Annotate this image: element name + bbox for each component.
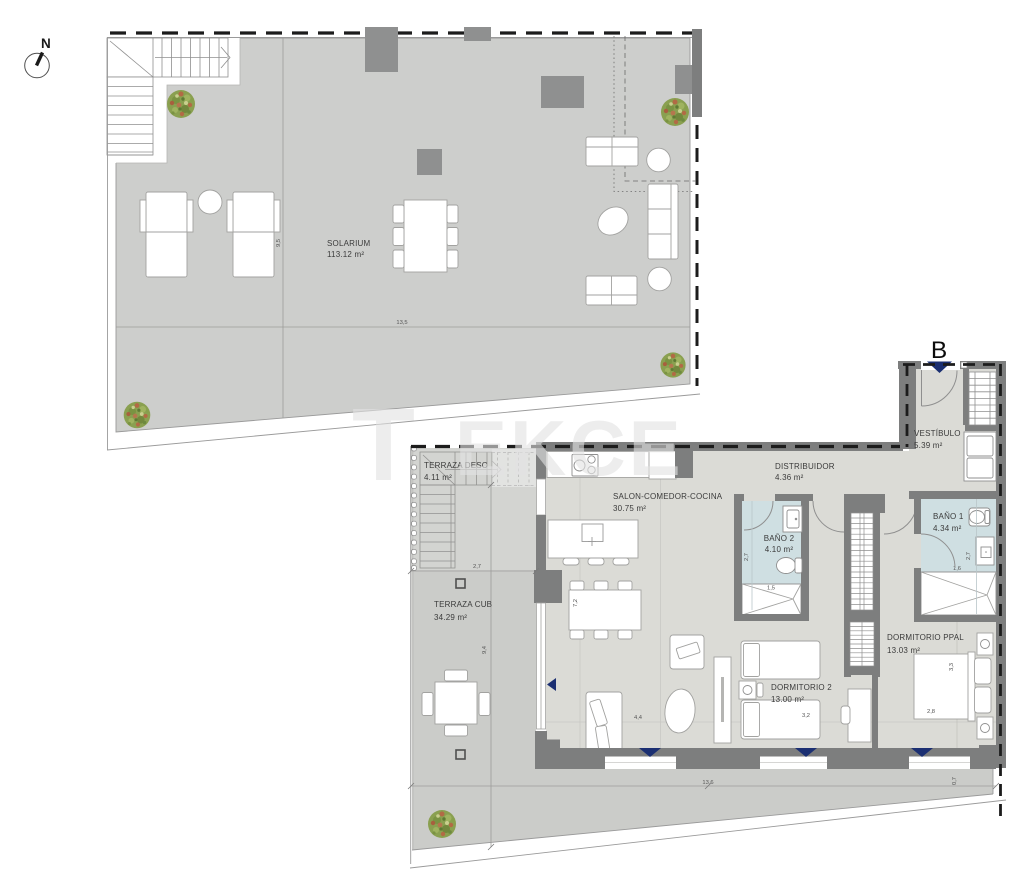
svg-text:BAÑO 2: BAÑO 2	[764, 534, 795, 543]
svg-text:1,5: 1,5	[767, 586, 775, 592]
svg-text:13.00 m²: 13.00 m²	[771, 695, 804, 704]
svg-text:1,6: 1,6	[953, 566, 961, 572]
svg-text:SALON-COMEDOR-COCINA: SALON-COMEDOR-COCINA	[613, 492, 723, 501]
svg-text:TEKCE: TEKCE	[352, 387, 684, 502]
svg-text:7,2: 7,2	[573, 599, 579, 607]
svg-text:2,7: 2,7	[966, 552, 972, 560]
svg-text:4.36 m²: 4.36 m²	[775, 473, 804, 482]
svg-text:N: N	[41, 36, 51, 51]
svg-text:TERRAZA CUB: TERRAZA CUB	[434, 600, 492, 609]
svg-text:30.75 m²: 30.75 m²	[613, 504, 646, 513]
svg-text:B: B	[931, 337, 947, 364]
svg-text:9,4: 9,4	[482, 645, 488, 654]
svg-text:VESTÍBULO: VESTÍBULO	[914, 429, 961, 438]
svg-text:13,5: 13,5	[396, 320, 407, 326]
svg-text:BAÑO 1: BAÑO 1	[933, 512, 964, 521]
svg-text:4.10 m²: 4.10 m²	[765, 545, 794, 554]
svg-text:34.29 m²: 34.29 m²	[434, 613, 467, 622]
svg-text:DORMITORIO PPAL: DORMITORIO PPAL	[887, 633, 964, 642]
svg-text:SOLARIUM: SOLARIUM	[327, 239, 371, 248]
svg-text:4.34 m²: 4.34 m²	[933, 524, 962, 533]
svg-text:4.11 m²: 4.11 m²	[424, 473, 452, 482]
svg-text:13,6: 13,6	[702, 780, 713, 786]
svg-text:13.03 m²: 13.03 m²	[887, 646, 920, 655]
svg-text:9,5: 9,5	[276, 239, 282, 247]
svg-text:3,3: 3,3	[949, 663, 955, 671]
svg-text:4,4: 4,4	[634, 715, 643, 721]
svg-text:2,7: 2,7	[744, 553, 750, 561]
svg-text:5.39 m²: 5.39 m²	[914, 441, 943, 450]
svg-text:113.12 m²: 113.12 m²	[327, 250, 364, 259]
svg-text:DORMITORIO 2: DORMITORIO 2	[771, 683, 832, 692]
svg-text:2,8: 2,8	[927, 709, 935, 715]
svg-text:DISTRIBUIDOR: DISTRIBUIDOR	[775, 462, 835, 471]
svg-text:3,2: 3,2	[802, 713, 810, 719]
svg-text:0,7: 0,7	[952, 777, 958, 785]
svg-text:2,7: 2,7	[473, 564, 481, 570]
